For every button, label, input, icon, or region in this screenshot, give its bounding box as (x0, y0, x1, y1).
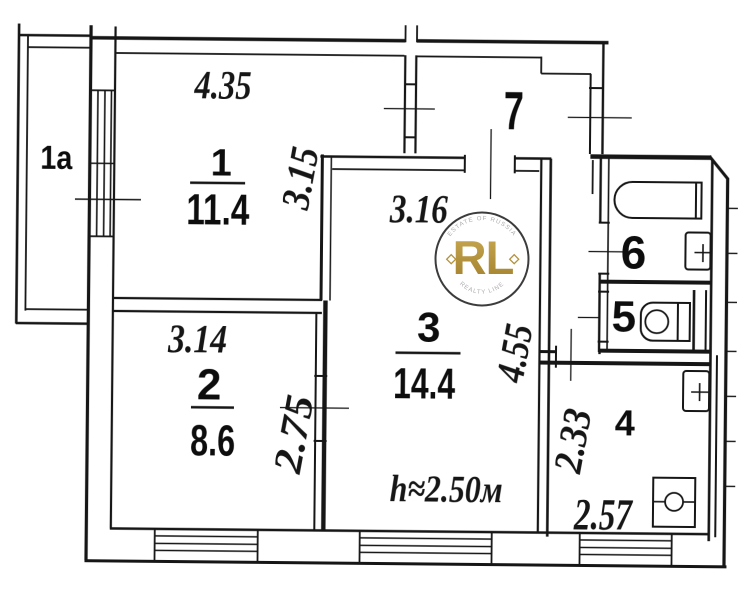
svg-text:3.16: 3.16 (389, 186, 448, 232)
svg-text:4: 4 (615, 402, 635, 443)
svg-text:8.6: 8.6 (190, 416, 235, 465)
svg-text:5: 5 (611, 292, 636, 341)
svg-text:6: 6 (620, 226, 646, 278)
svg-text:1: 1 (211, 142, 233, 184)
svg-text:h≈2.50м: h≈2.50м (389, 468, 502, 511)
svg-text:2: 2 (197, 360, 222, 409)
svg-text:3: 3 (417, 303, 441, 350)
svg-text:3.14: 3.14 (167, 316, 227, 362)
svg-text:1a: 1a (40, 139, 73, 176)
svg-text:14.4: 14.4 (393, 359, 456, 409)
svg-text:7: 7 (504, 81, 525, 141)
svg-text:11.4: 11.4 (186, 185, 250, 235)
svg-text:4.35: 4.35 (194, 62, 252, 108)
svg-text:RL: RL (453, 231, 514, 284)
